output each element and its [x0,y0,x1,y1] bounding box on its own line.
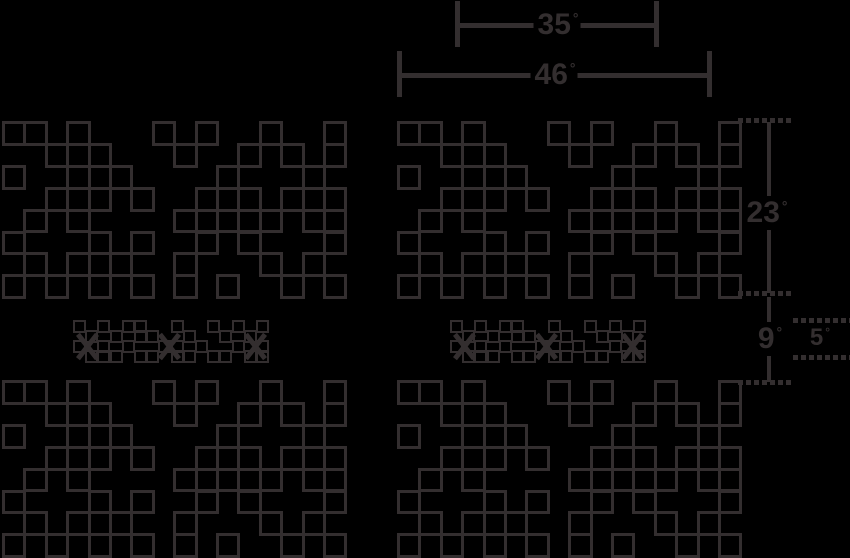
pattern-square [611,274,635,299]
pattern-square [590,380,614,405]
mini-pattern-square [134,350,147,363]
pattern-square [2,274,26,299]
dotted-extension-line-strip-bottom [793,355,850,360]
mini-pattern-square [122,340,135,353]
pattern-square [173,402,197,427]
pattern-square [397,274,421,299]
mini-pattern-square [511,330,524,343]
mini-pattern-square [183,330,196,343]
mini-pattern-square [560,330,573,343]
pattern-square [397,165,421,190]
pattern-square [718,274,742,299]
mini-pattern-square [97,350,110,363]
mini-pattern-square [609,320,622,333]
pattern-square [568,143,592,168]
pattern-square [259,468,283,493]
pattern-square [718,143,742,168]
pattern-square [323,490,347,515]
pattern-square [568,402,592,427]
pattern-square [88,187,112,212]
technical-drawing-canvas: 35° 46° 23° 9° 5° [0,0,850,558]
pattern-square [675,274,699,299]
dimension-value-35: 35 [538,8,571,41]
pattern-square [216,533,240,558]
pattern-square [23,209,47,234]
pattern-square [130,231,154,256]
pattern-square [195,380,219,405]
degree-symbol: ° [573,10,579,26]
pattern-square [173,143,197,168]
pattern-square [590,121,614,146]
dotted-extension-line-bottom [738,380,792,385]
pattern-square [323,143,347,168]
mini-pattern-square [232,320,245,333]
pattern-square [130,490,154,515]
pattern-square [718,533,742,558]
pattern-square [88,274,112,299]
mini-pattern-square [122,320,135,333]
pattern-square [418,209,442,234]
pattern-square [2,533,26,558]
dimension-value-46: 46 [535,58,568,91]
pattern-square [525,490,549,515]
mini-pattern-square [97,320,110,333]
mini-pattern-square [207,350,220,363]
mini-pattern-square [596,330,609,343]
pattern-square [2,165,26,190]
pattern-square [483,446,507,471]
pattern-square [323,402,347,427]
mini-pattern-square [450,320,463,333]
pattern-square [632,402,656,427]
mini-pattern-square [499,320,512,333]
dimension-tick-35-left [455,1,460,47]
pattern-square [130,274,154,299]
pattern-square [323,533,347,558]
x-mark [454,333,475,360]
pattern-square [525,231,549,256]
mini-pattern-square [572,340,585,353]
pattern-square [23,468,47,493]
mini-pattern-square [474,320,487,333]
mini-pattern-square [596,350,609,363]
mini-pattern-square [134,330,147,343]
dotted-extension-line-middle [738,291,792,296]
pattern-square [173,533,197,558]
pattern-square [611,533,635,558]
mini-pattern-square [584,350,597,363]
pattern-square [280,274,304,299]
x-mark [622,333,643,360]
mini-pattern-square [195,340,208,353]
pattern-square [525,446,549,471]
pattern-square [88,533,112,558]
dimension-tick-46-right [707,51,712,97]
mini-pattern-square [183,350,196,363]
degree-symbol: ° [782,198,788,214]
x-mark [159,333,180,360]
x-mark [536,333,557,360]
pattern-square [590,490,614,515]
mini-pattern-square [219,350,232,363]
dimension-value-5: 5 [810,324,823,351]
mini-pattern-square [523,330,536,343]
mini-pattern-square [256,320,269,333]
pattern-square [440,274,464,299]
pattern-square [718,402,742,427]
pattern-square [675,533,699,558]
pattern-square [718,490,742,515]
mini-pattern-square [219,330,232,343]
mini-pattern-square [73,320,86,333]
pattern-square [130,533,154,558]
pattern-square [173,274,197,299]
pattern-square [525,187,549,212]
mini-pattern-square [474,350,487,363]
mini-pattern-square [110,350,123,363]
mini-pattern-square [584,320,597,333]
pattern-square [525,274,549,299]
pattern-square [418,468,442,493]
pattern-square [2,424,26,449]
pattern-square [323,274,347,299]
pattern-square [440,533,464,558]
pattern-square [195,490,219,515]
pattern-square [397,533,421,558]
x-mark [77,333,98,360]
pattern-square [237,402,261,427]
mini-pattern-square [232,340,245,353]
dimension-label-35: 35° [534,8,581,42]
pattern-square [568,533,592,558]
pattern-square [718,231,742,256]
mini-pattern-square [511,350,524,363]
pattern-square [483,533,507,558]
pattern-square [45,533,69,558]
mini-pattern-square [207,320,220,333]
mini-pattern-square [110,330,123,343]
dimension-label-9: 9° [754,322,784,356]
mini-pattern-square [609,340,622,353]
mini-pattern-square [633,320,646,333]
dimension-label-23: 23° [743,196,790,230]
mini-pattern-square [548,320,561,333]
pattern-square [216,274,240,299]
pattern-square [195,121,219,146]
pattern-square [259,209,283,234]
dimension-tick-35-right [654,1,659,47]
pattern-square [483,187,507,212]
pattern-square [654,209,678,234]
mini-pattern-square [487,330,500,343]
dimension-label-5: 5° [806,324,832,352]
dimension-value-9: 9 [758,322,775,355]
dotted-extension-line-top [738,118,792,123]
dimension-value-23: 23 [747,196,780,229]
degree-symbol: ° [570,60,576,76]
mini-pattern-square [146,330,159,343]
pattern-square [130,446,154,471]
pattern-square [237,143,261,168]
pattern-square [323,231,347,256]
pattern-square [654,468,678,493]
pattern-square [397,424,421,449]
x-mark [245,333,266,360]
dimension-label-46: 46° [531,58,578,92]
mini-pattern-square [487,350,500,363]
pattern-square [525,533,549,558]
pattern-square [88,446,112,471]
pattern-square [568,274,592,299]
pattern-square [130,187,154,212]
mini-pattern-square [499,340,512,353]
pattern-square [632,143,656,168]
pattern-square [45,274,69,299]
pattern-square [590,231,614,256]
degree-symbol: ° [825,325,830,339]
mini-pattern-square [560,350,573,363]
pattern-square [195,231,219,256]
degree-symbol: ° [777,324,783,340]
dimension-tick-46-left [397,51,402,97]
pattern-square [483,274,507,299]
mini-pattern-square [171,320,184,333]
pattern-square [280,533,304,558]
dotted-extension-line-strip-top [793,318,850,323]
